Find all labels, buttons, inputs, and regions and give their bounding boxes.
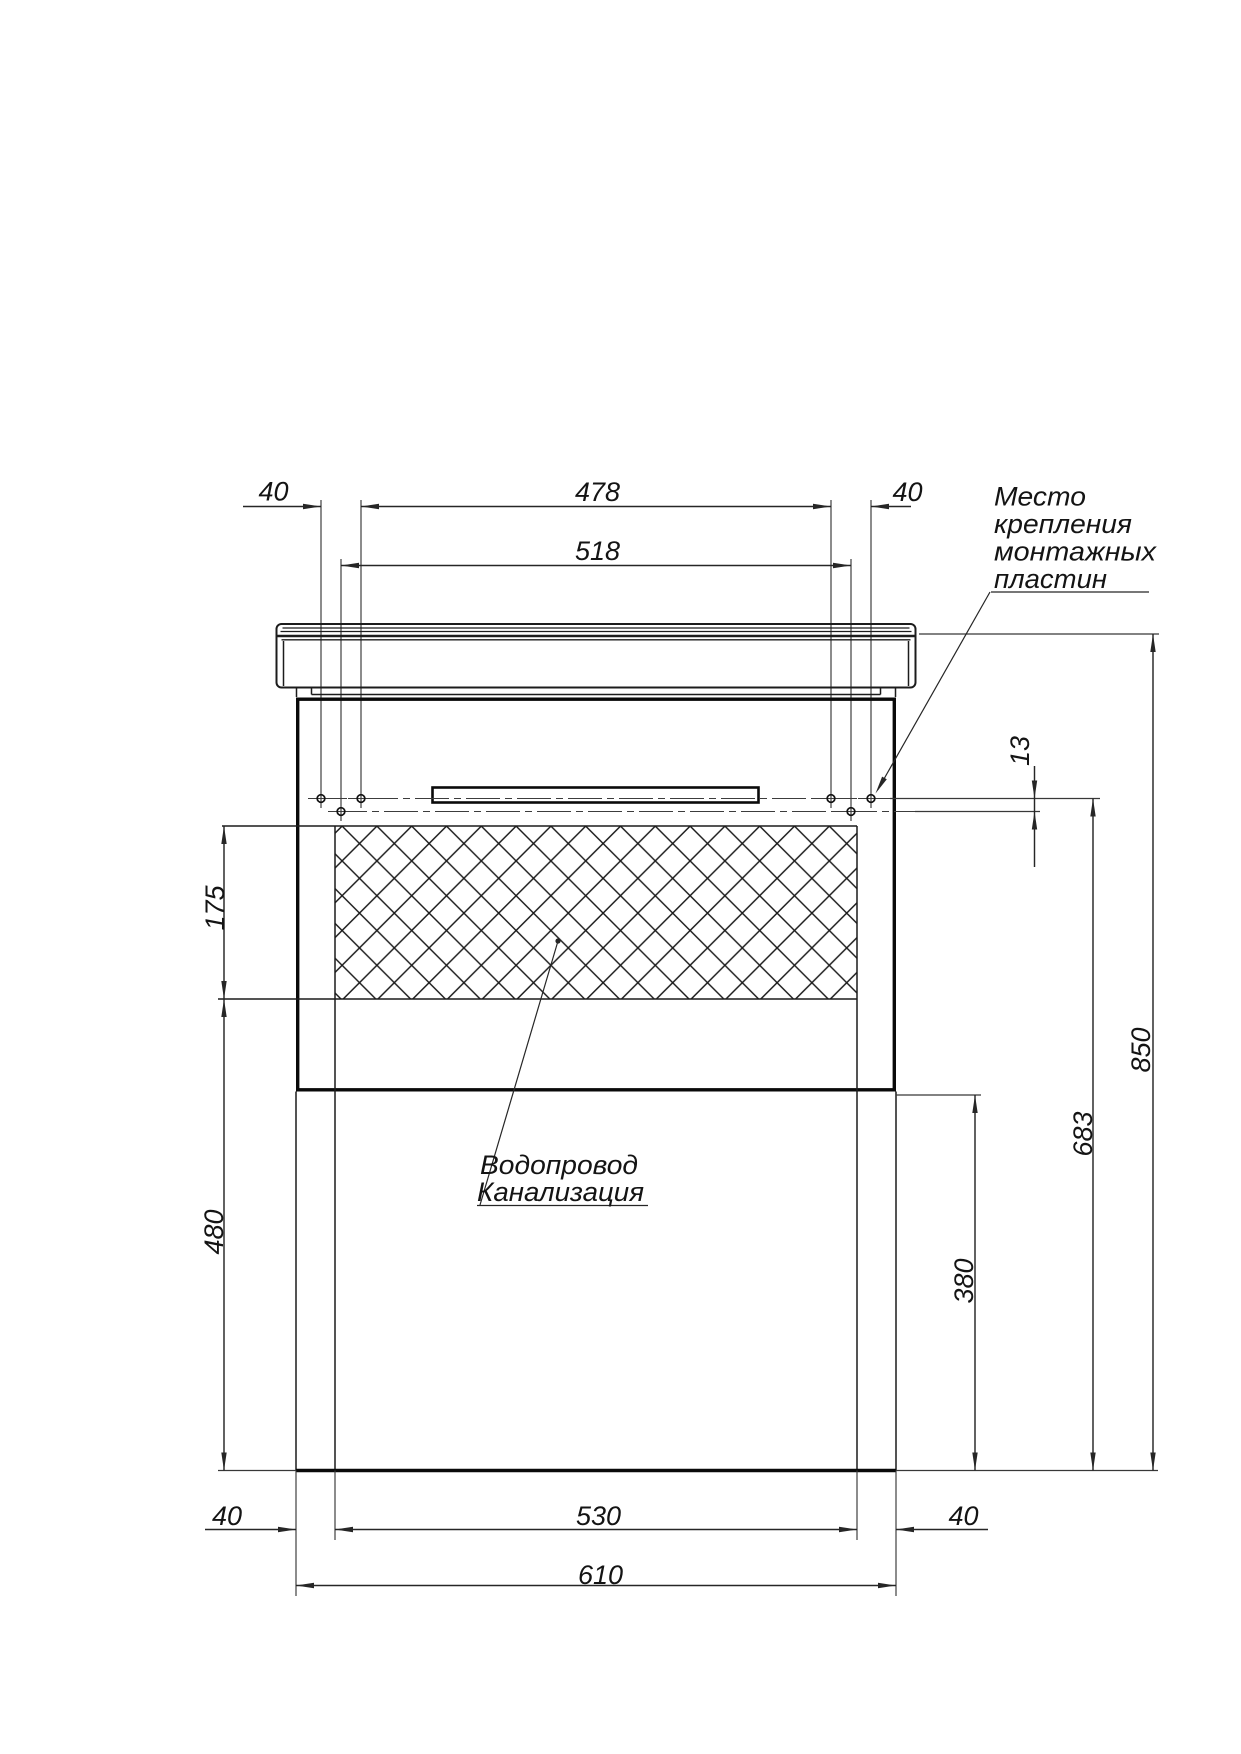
svg-text:478: 478 [575, 477, 620, 507]
svg-text:Место: Место [994, 482, 1086, 512]
svg-text:13: 13 [1005, 736, 1035, 766]
svg-text:610: 610 [578, 1560, 623, 1590]
svg-text:Водопровод: Водопровод [480, 1150, 638, 1180]
svg-text:683: 683 [1068, 1111, 1098, 1156]
svg-text:175: 175 [200, 884, 230, 930]
svg-text:монтажных: монтажных [994, 537, 1158, 567]
svg-text:530: 530 [576, 1501, 621, 1531]
svg-text:480: 480 [199, 1209, 229, 1254]
svg-text:Канализация: Канализация [477, 1177, 644, 1207]
svg-text:40: 40 [948, 1501, 978, 1531]
svg-text:850: 850 [1126, 1027, 1156, 1072]
svg-text:40: 40 [212, 1501, 242, 1531]
svg-text:40: 40 [892, 477, 922, 507]
svg-text:380: 380 [949, 1258, 979, 1303]
svg-text:крепления: крепления [994, 509, 1132, 539]
svg-text:40: 40 [258, 477, 288, 507]
svg-text:518: 518 [575, 536, 620, 566]
svg-text:пластин: пластин [994, 564, 1107, 594]
